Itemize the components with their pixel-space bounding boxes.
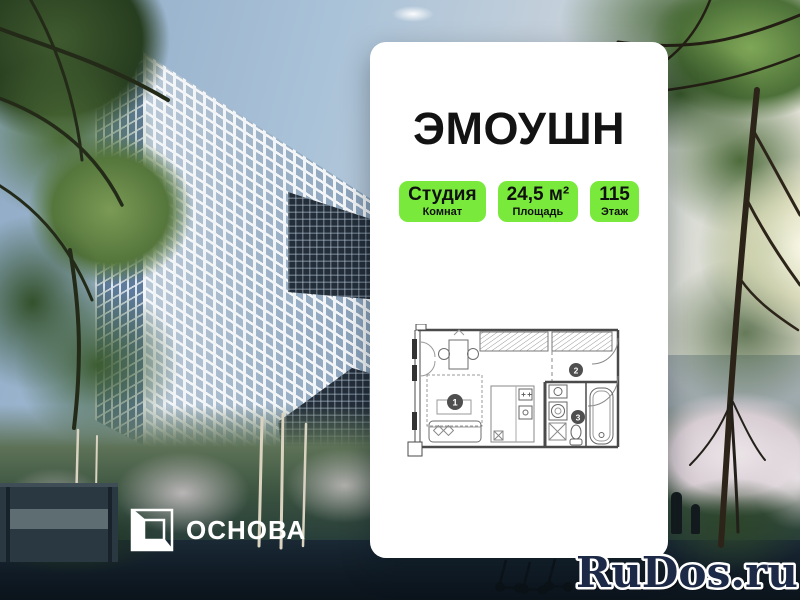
svg-text:RuDos.ru: RuDos.ru (576, 548, 798, 597)
svg-text:3: 3 (576, 412, 581, 422)
wardrobe (480, 332, 548, 351)
table (449, 340, 468, 369)
floor-badge: 115 Этаж (590, 181, 639, 222)
listing-card: ЭМОУШН Студия Комнат 24,5 м² Площадь 115… (370, 42, 668, 558)
spec-badges: Студия Комнат 24,5 м² Площадь 115 Этаж (370, 181, 668, 222)
window-frame (412, 339, 417, 359)
site-watermark: RuDos.ru RuDos.ru (570, 540, 800, 600)
listing-image: ЭМОУШН Студия Комнат 24,5 м² Площадь 115… (0, 0, 800, 600)
floor-plan: 1 2 3 (404, 324, 628, 464)
floor-label: Этаж (599, 206, 630, 218)
person-silhouette (691, 504, 700, 534)
rooms-badge: Студия Комнат (399, 181, 485, 222)
scooter-silhouettes (496, 559, 573, 595)
chair (439, 349, 450, 360)
chair (468, 349, 479, 360)
person-silhouette (671, 492, 682, 534)
floor-value: 115 (599, 184, 630, 206)
window-frame (412, 365, 417, 381)
kitchen-sink (519, 406, 532, 419)
toilet (571, 425, 581, 439)
svg-text:2: 2 (574, 365, 579, 375)
area-value: 24,5 м² (507, 184, 570, 206)
svg-text:1: 1 (452, 398, 458, 409)
area-label: Площадь (507, 206, 570, 218)
park-kiosk (0, 483, 118, 562)
rooms-label: Комнат (408, 206, 476, 218)
developer-name: ОСНОВА (186, 515, 306, 546)
window-frame (412, 412, 417, 430)
developer-logo: ОСНОВА (128, 506, 306, 554)
project-title: ЭМОУШН (370, 103, 668, 155)
area-badge: 24,5 м² Площадь (498, 181, 579, 222)
bath-sink (549, 385, 567, 398)
wardrobe (552, 332, 612, 351)
osnova-logo-icon (128, 506, 176, 554)
sofa (429, 421, 481, 442)
rooms-value: Студия (408, 184, 476, 206)
